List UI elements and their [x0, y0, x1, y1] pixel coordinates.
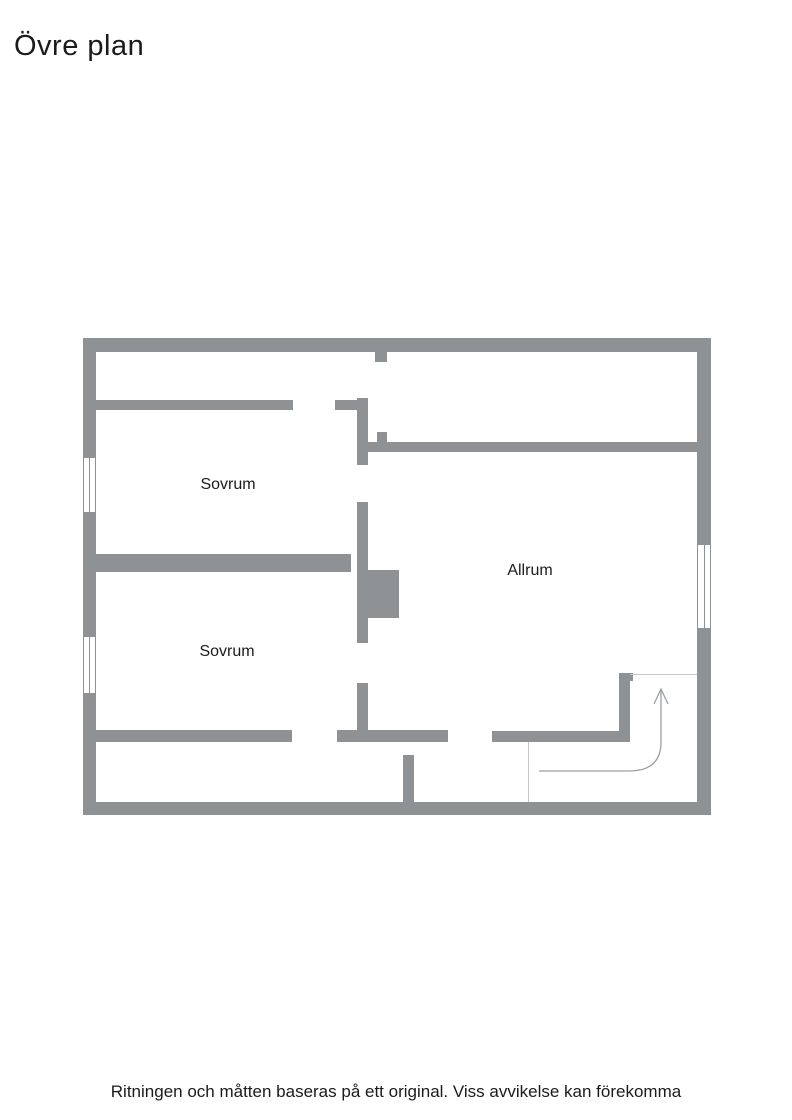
chimney-block: [358, 570, 399, 608]
room-label-sovrum-lower: Sovrum: [199, 643, 254, 661]
floor-plan: Sovrum Sovrum Allrum: [83, 338, 711, 815]
wall-corridor: [96, 400, 293, 410]
stair-edge-line-horizontal: [630, 674, 697, 675]
wall-door-stub-top: [375, 352, 387, 362]
wall-bedroom2-bottom-left: [96, 730, 292, 742]
wall-center-vertical-upper: [357, 398, 368, 465]
room-label-allrum: Allrum: [507, 562, 552, 580]
wall-outer-top: [83, 338, 711, 352]
window-icon-left-upper: [83, 458, 96, 512]
wall-bedroom2-bottom-right: [337, 730, 448, 742]
page-title: Övre plan: [14, 30, 144, 63]
wall-stair-horizontal: [492, 731, 628, 742]
window-icon-right: [697, 545, 711, 628]
disclaimer-text: Ritningen och måtten baseras på ett orig…: [0, 1082, 792, 1102]
window-icon-left-lower: [83, 637, 96, 693]
stair-edge-line-vertical: [528, 742, 529, 802]
wall-door-stub-hallway: [377, 432, 387, 442]
wall-stair-riser: [619, 673, 630, 742]
wall-corridor-stub: [335, 400, 357, 410]
wall-hallway-horizontal: [363, 442, 697, 452]
wall-bottom-stub: [403, 755, 414, 802]
room-label-sovrum-upper: Sovrum: [200, 476, 255, 494]
wall-bedroom-divider: [96, 554, 351, 572]
chimney-block-step: [368, 608, 399, 618]
wall-outer-bottom: [83, 802, 711, 815]
page: Övre plan: [0, 0, 792, 1120]
wall-outer-left: [83, 338, 96, 815]
